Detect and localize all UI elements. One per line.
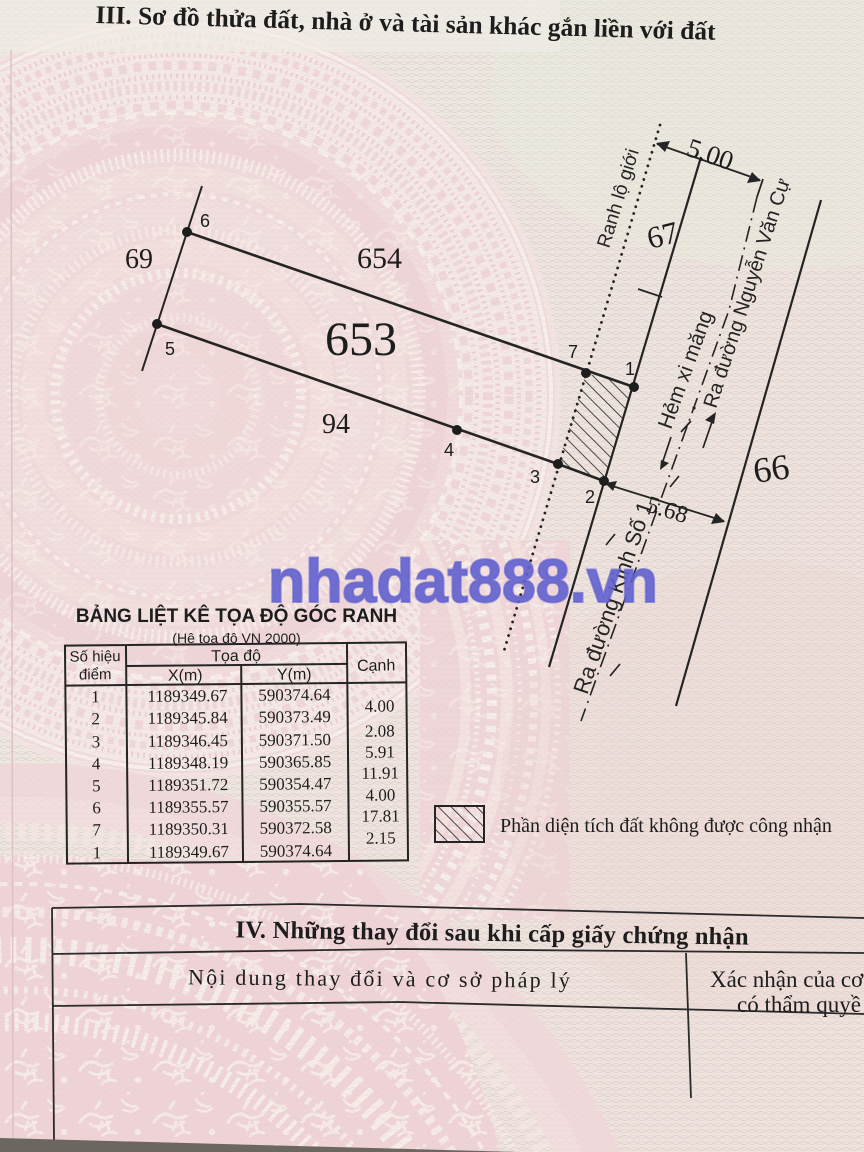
svg-text:Xác nhận của cơ: Xác nhận của cơ	[710, 967, 864, 992]
svg-text:X(m): X(m)	[168, 667, 203, 684]
svg-text:6: 6	[92, 798, 101, 817]
svg-text:1189351.72: 1189351.72	[148, 775, 228, 795]
svg-text:3: 3	[92, 732, 101, 751]
svg-text:11.91: 11.91	[361, 763, 399, 782]
svg-text:2.15: 2.15	[366, 828, 396, 847]
svg-text:1189349.67: 1189349.67	[147, 686, 228, 706]
svg-text:2: 2	[91, 709, 100, 728]
svg-text:1189346.45: 1189346.45	[148, 731, 228, 751]
svg-text:590365.85: 590365.85	[259, 752, 331, 772]
svg-text:1189355.57: 1189355.57	[148, 797, 229, 817]
svg-text:4.00: 4.00	[365, 696, 395, 715]
svg-text:17.81: 17.81	[361, 806, 399, 825]
svg-text:Số hiệu: Số hiệu	[70, 648, 121, 665]
svg-text:1189350.31: 1189350.31	[149, 819, 229, 839]
svg-text:Phần diện tích đất không được: Phần diện tích đất không được công nhận	[500, 815, 832, 837]
svg-text:4.00: 4.00	[365, 785, 395, 804]
svg-text:1: 1	[91, 687, 100, 706]
svg-text:4: 4	[92, 754, 101, 773]
svg-text:Nội dung thay đổi và cơ sở phá: Nội dung thay đổi và cơ sở pháp lý	[188, 964, 572, 992]
svg-text:590374.64: 590374.64	[260, 841, 333, 861]
svg-text:590355.57: 590355.57	[259, 796, 332, 816]
svg-text:IV. Những thay đổi sau khi cấp: IV. Những thay đổi sau khi cấp giấy chứn…	[235, 916, 749, 950]
svg-text:590354.47: 590354.47	[259, 774, 332, 794]
svg-text:5: 5	[92, 776, 101, 795]
svg-text:Cạnh: Cạnh	[357, 657, 395, 674]
svg-text:1189345.84: 1189345.84	[148, 708, 229, 728]
svg-text:5.91: 5.91	[365, 742, 395, 761]
svg-text:1: 1	[93, 843, 102, 862]
svg-text:có thẩm quyề: có thẩm quyề	[737, 992, 861, 1017]
svg-text:1189349.67: 1189349.67	[149, 842, 230, 862]
svg-text:2.08: 2.08	[365, 721, 395, 740]
svg-text:7: 7	[92, 820, 101, 839]
svg-text:Y(m): Y(m)	[277, 666, 312, 683]
svg-text:590371.50: 590371.50	[259, 730, 331, 750]
svg-text:1189348.19: 1189348.19	[148, 753, 228, 773]
svg-text:590372.58: 590372.58	[260, 818, 332, 838]
svg-text:điểm: điểm	[79, 666, 112, 683]
svg-text:Tọa độ: Tọa độ	[211, 648, 261, 665]
svg-text:590374.64: 590374.64	[258, 685, 331, 705]
svg-text:590373.49: 590373.49	[258, 707, 330, 727]
